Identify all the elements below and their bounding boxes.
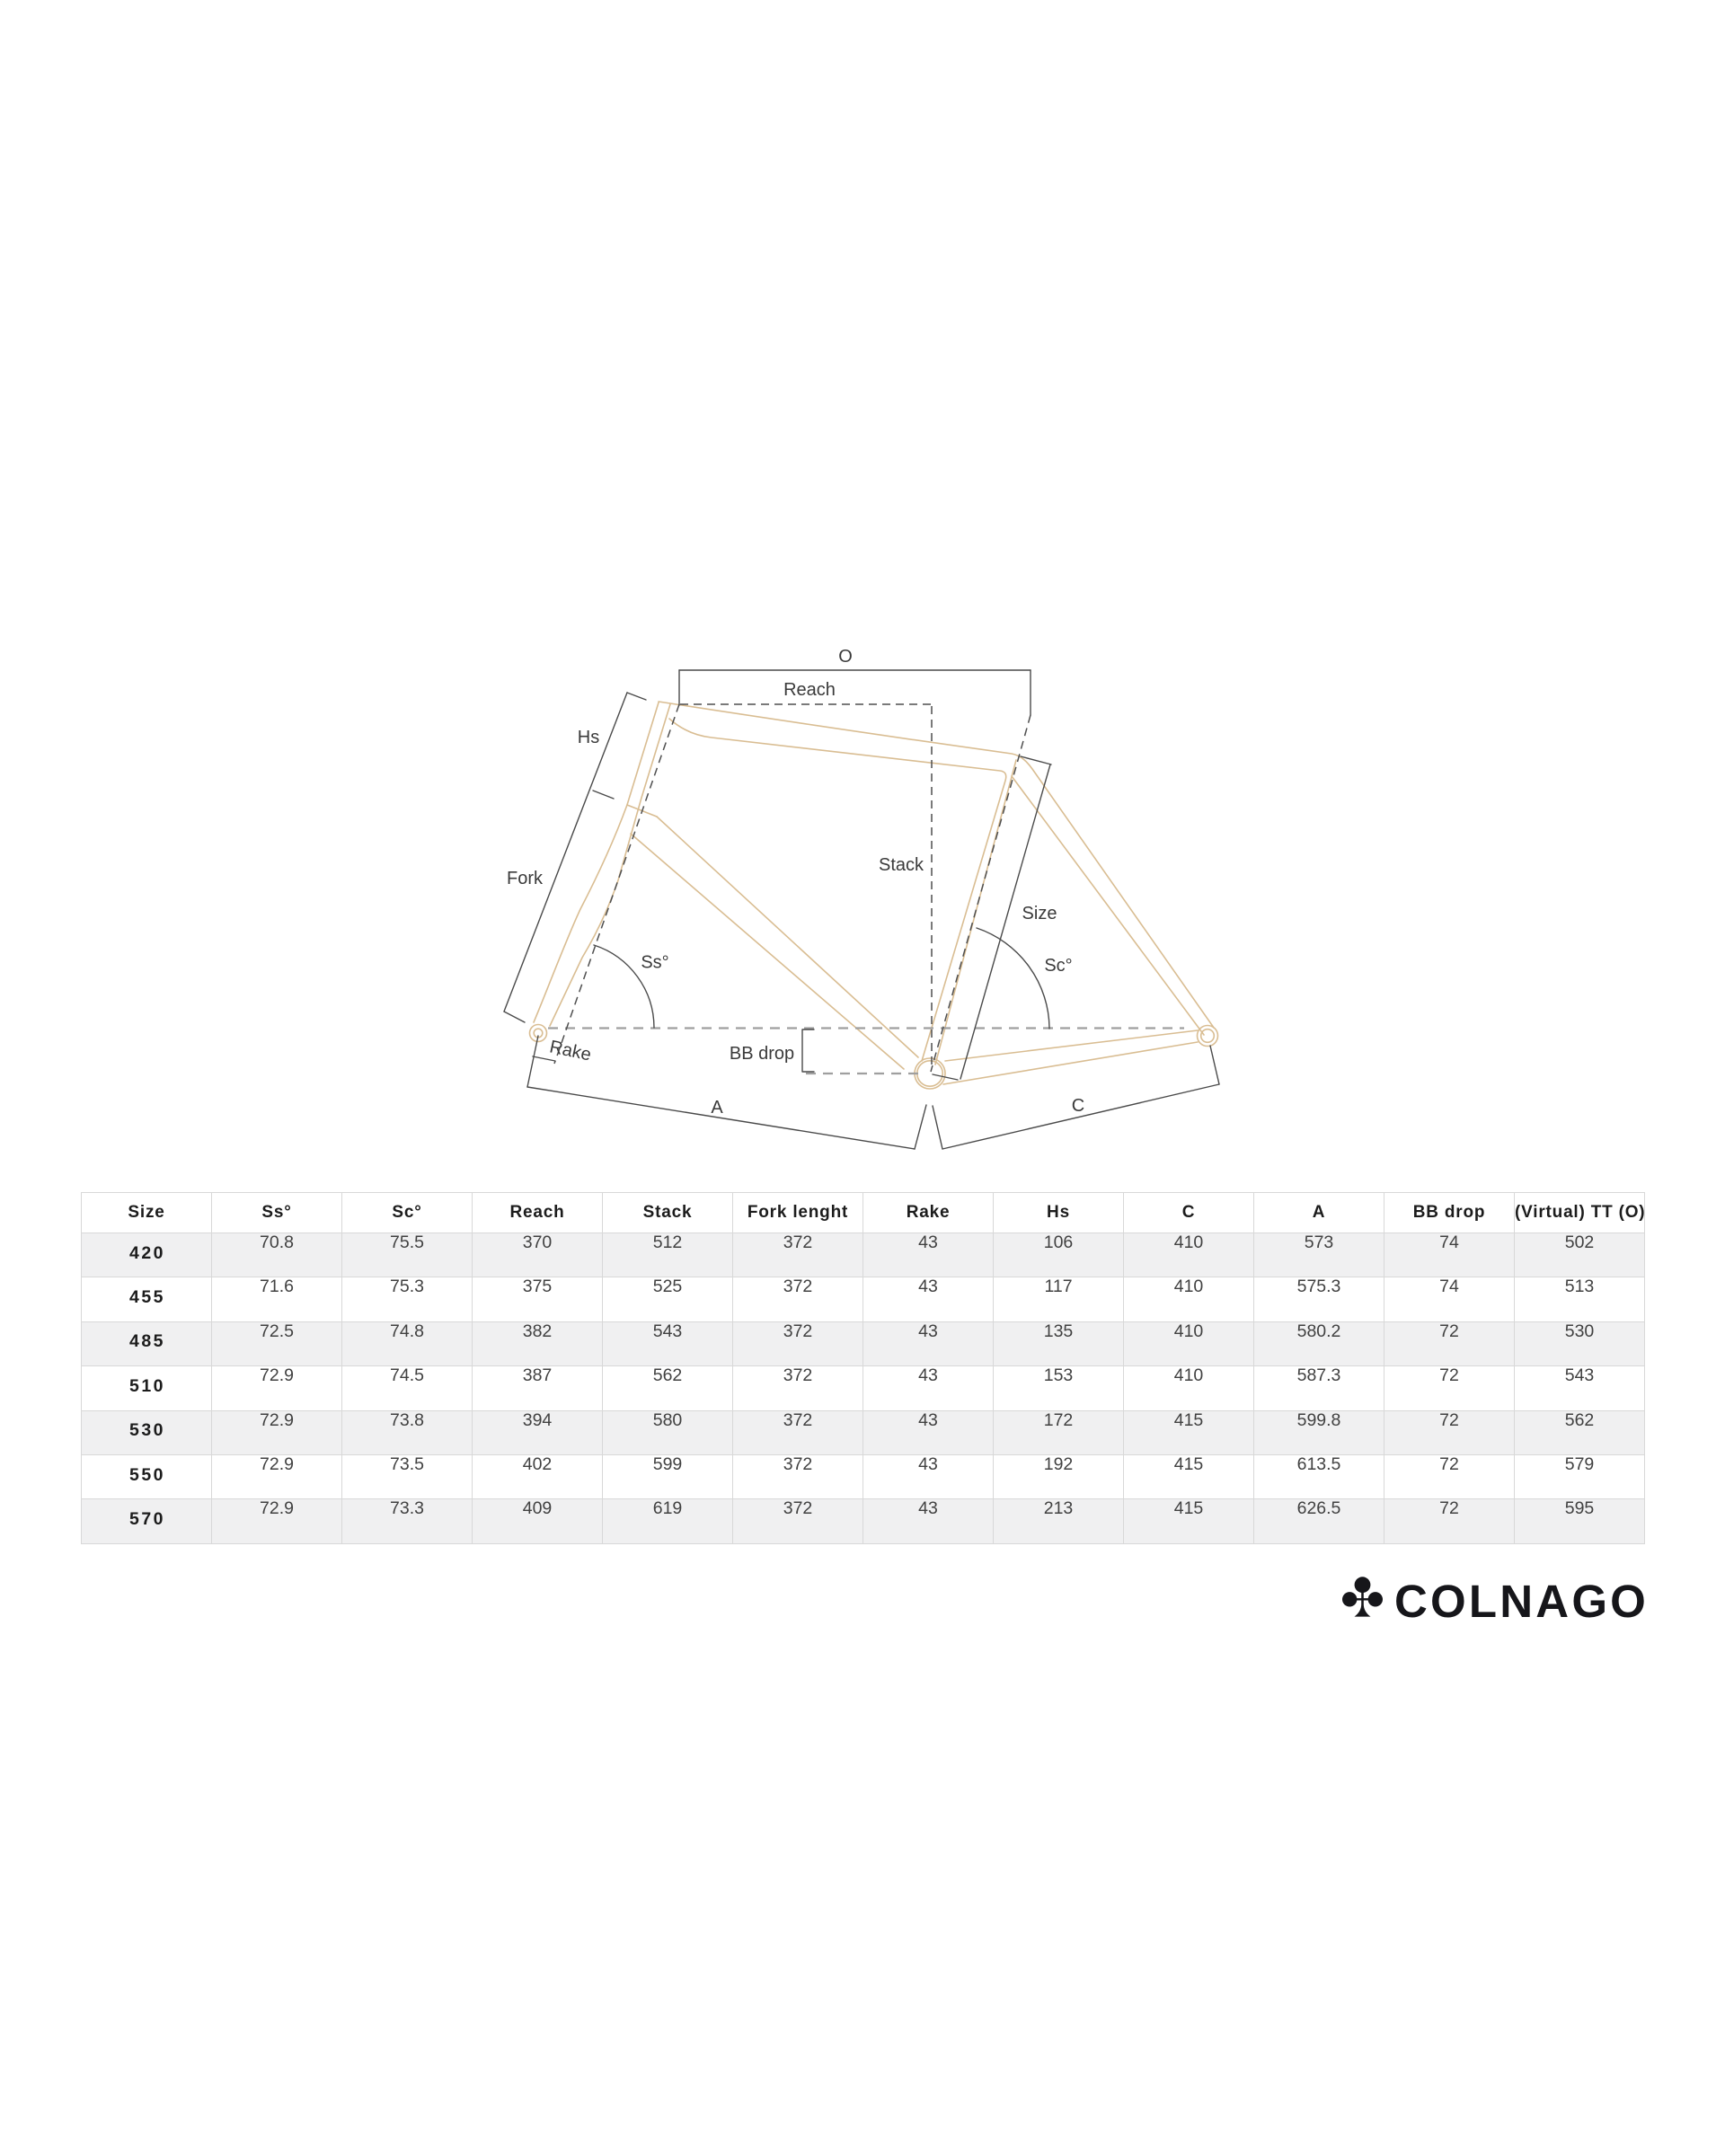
svg-text:C: C: [1072, 1096, 1084, 1116]
svg-text:Fork: Fork: [507, 869, 544, 888]
svg-text:A: A: [711, 1098, 723, 1118]
svg-text:COLNAGO: COLNAGO: [1394, 1576, 1649, 1626]
svg-text:Stack: Stack: [879, 855, 924, 875]
svg-text:Reach: Reach: [783, 680, 836, 700]
svg-text:Ss°: Ss°: [641, 953, 668, 973]
svg-text:Sc°: Sc°: [1044, 956, 1072, 976]
svg-text:Size: Size: [1022, 904, 1057, 923]
svg-text:BB drop: BB drop: [730, 1044, 794, 1064]
svg-text:Hs: Hs: [578, 728, 599, 747]
svg-text:O: O: [838, 647, 853, 667]
